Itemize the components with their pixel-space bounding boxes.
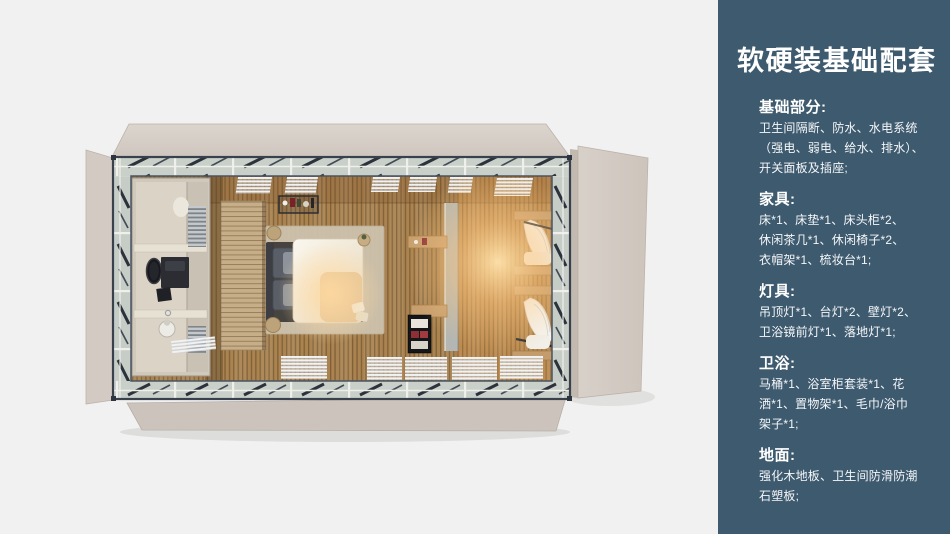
pouf-stool <box>267 226 281 240</box>
section-heading: 地面: <box>759 446 942 466</box>
room-top-view-render <box>0 0 718 534</box>
spec-sections: 基础部分: 卫生间隔断、防水、水电系统 （强电、弱电、给水、排水）、 开关面板及… <box>759 98 942 506</box>
wall-panel-right <box>578 146 648 398</box>
section-line: 马桶*1、浴室柜套装*1、花 <box>759 374 942 394</box>
section-line: 床*1、床垫*1、床头柜*2、 <box>759 210 942 230</box>
wall-panel-right-fold <box>570 149 578 398</box>
section-line: 开关面板及插座; <box>759 158 942 178</box>
section-bath: 卫浴: 马桶*1、浴室柜套装*1、花 洒*1、置物架*1、毛巾/浴巾 架子*1; <box>759 354 942 434</box>
bed-lamp-glow <box>278 241 382 345</box>
section-line: 洒*1、置物架*1、毛巾/浴巾 <box>759 394 942 414</box>
section-heading: 家具: <box>759 190 942 210</box>
section-heading: 卫浴: <box>759 354 942 374</box>
section-line: 卫浴镜前灯*1、落地灯*1; <box>759 322 942 342</box>
section-flooring: 地面: 强化木地板、卫生间防滑防潮 石塑板; <box>759 446 942 506</box>
room-render-svg <box>0 0 718 534</box>
section-basics: 基础部分: 卫生间隔断、防水、水电系统 （强电、弱电、给水、排水）、 开关面板及… <box>759 98 942 178</box>
wall-panel-top <box>112 124 570 157</box>
section-line: 吊顶灯*1、台灯*2、壁灯*2、 <box>759 302 942 322</box>
section-line: 衣帽架*1、梳妆台*1; <box>759 250 942 270</box>
section-heading: 灯具: <box>759 282 942 302</box>
wall-panel-bottom <box>127 397 566 431</box>
pouf-stool <box>266 318 281 333</box>
vanity-mirror <box>147 259 162 284</box>
section-line: 卫生间隔断、防水、水电系统 <box>759 118 942 138</box>
coat-rack <box>279 196 318 213</box>
headboard-partition-wall <box>221 201 266 350</box>
slide: 软硬装基础配套 基础部分: 卫生间隔断、防水、水电系统 （强电、弱电、给水、排水… <box>0 0 950 534</box>
shower-tray <box>173 197 189 217</box>
section-furniture: 家具: 床*1、床垫*1、床头柜*2、 休闲茶几*1、休闲椅子*2、 衣帽架*1… <box>759 190 942 270</box>
section-line: 石塑板; <box>759 486 942 506</box>
room-interior <box>131 170 590 381</box>
section-line: （强电、弱电、给水、排水）、 <box>759 138 942 158</box>
section-line: 架子*1; <box>759 414 942 434</box>
spec-panel: 软硬装基础配套 基础部分: 卫生间隔断、防水、水电系统 （强电、弱电、给水、排水… <box>718 0 950 534</box>
section-lighting: 灯具: 吊顶灯*1、台灯*2、壁灯*2、 卫浴镜前灯*1、落地灯*1; <box>759 282 942 342</box>
section-line: 休闲茶几*1、休闲椅子*2、 <box>759 230 942 250</box>
panel-title: 软硬装基础配套 <box>737 44 942 78</box>
section-line: 强化木地板、卫生间防滑防潮 <box>759 466 942 486</box>
wall-panel-left <box>86 150 113 404</box>
section-heading: 基础部分: <box>759 98 942 118</box>
